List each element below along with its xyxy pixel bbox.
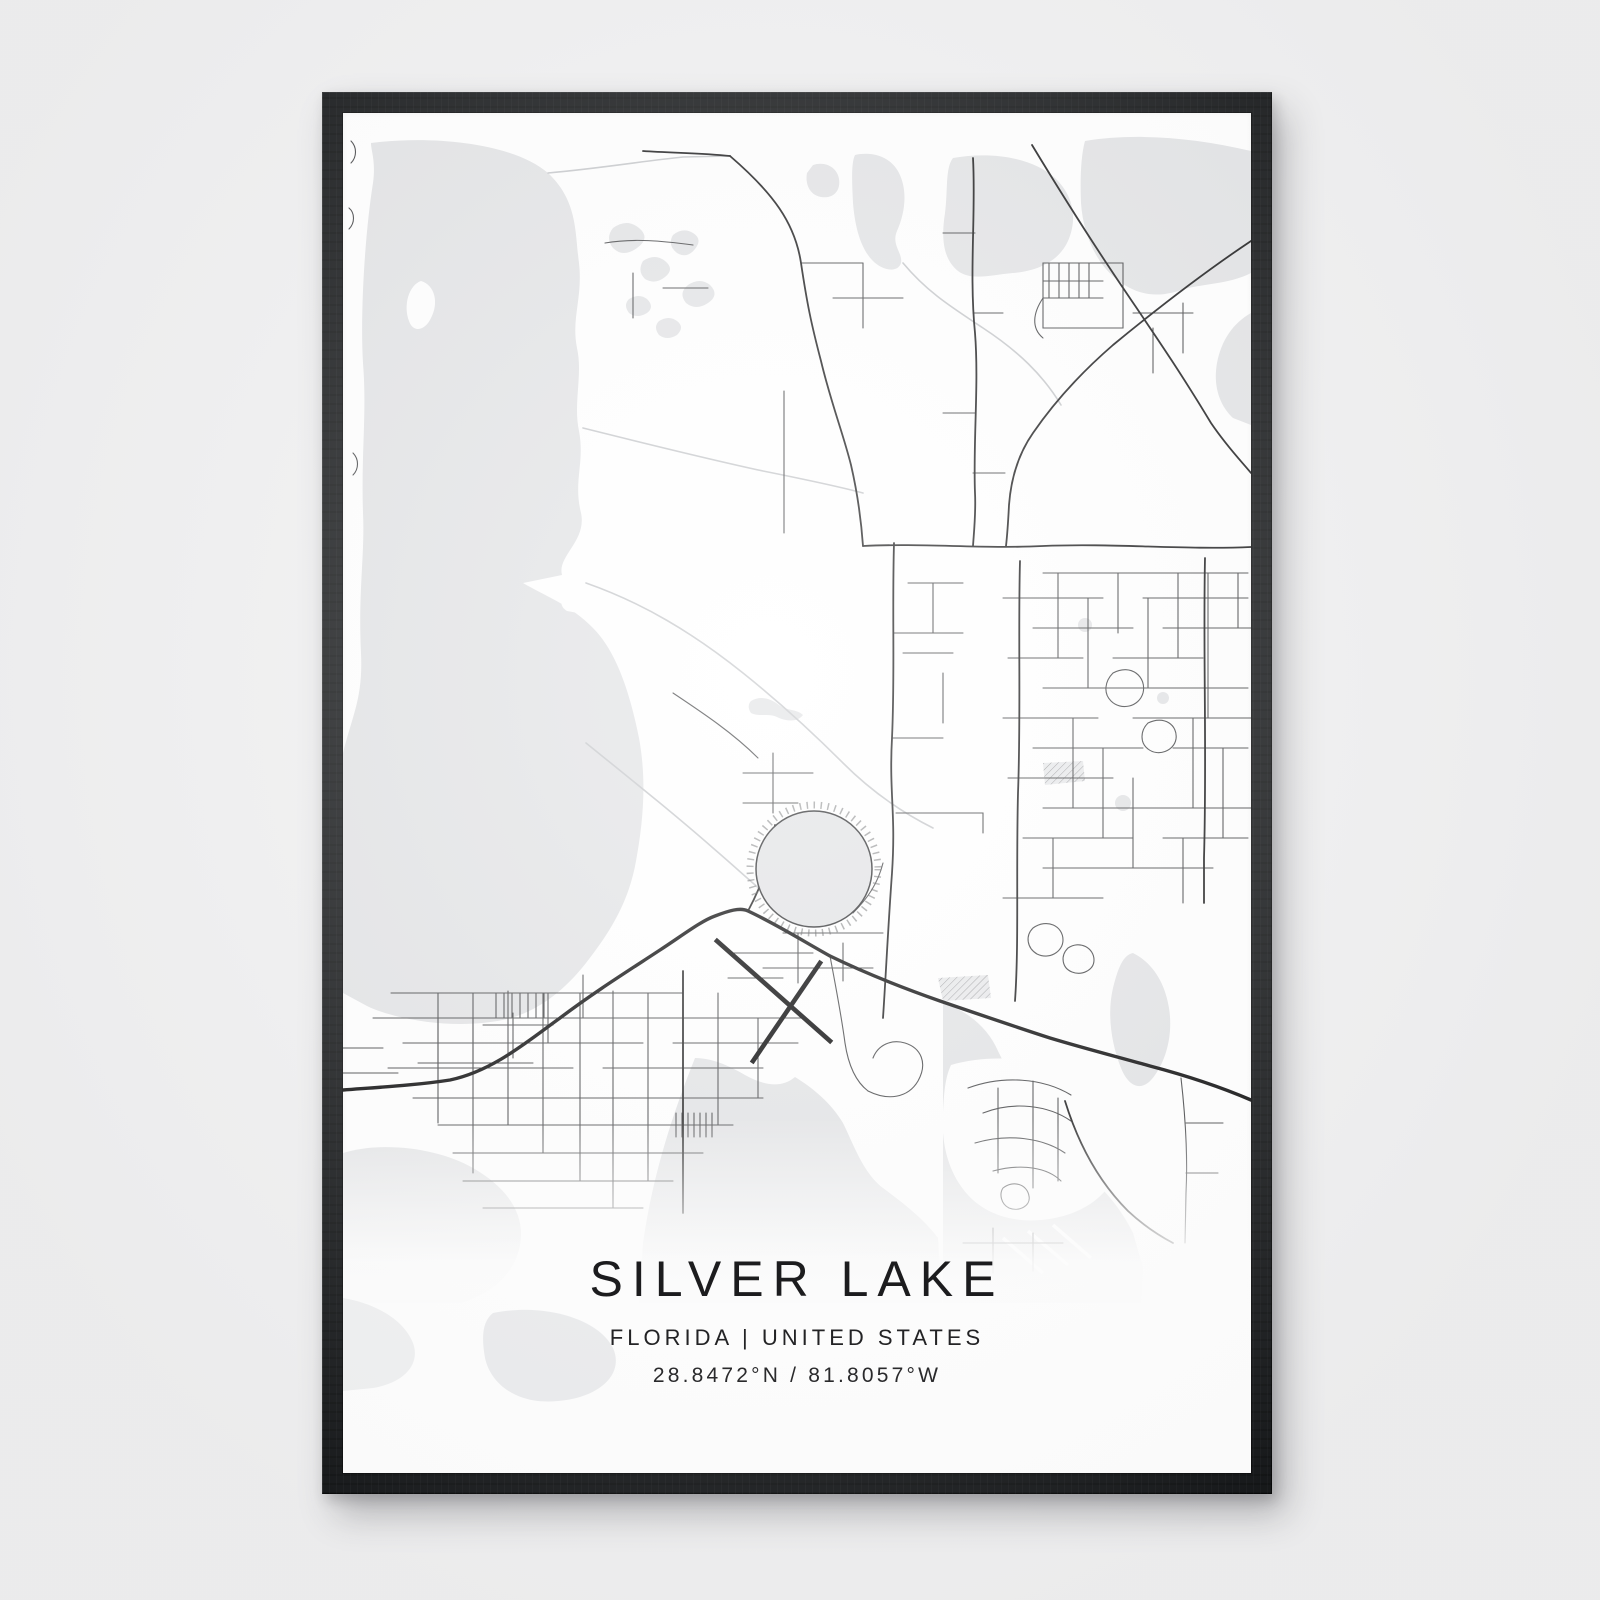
poster-frame: SILVER LAKE FLORIDA | UNITED STATES 28.8… [322,92,1272,1494]
poster-title: SILVER LAKE [343,1251,1251,1309]
wetland-hatch [938,761,1085,1001]
poster-subtitle: FLORIDA | UNITED STATES [343,1325,1251,1351]
poster-coordinates: 28.8472°N / 81.8057°W [343,1364,1251,1388]
poster-caption: SILVER LAKE FLORIDA | UNITED STATES 28.8… [343,1251,1251,1388]
silver-lake-circle [750,805,878,933]
wall-background: SILVER LAKE FLORIDA | UNITED STATES 28.8… [0,0,1600,1600]
map-poster: SILVER LAKE FLORIDA | UNITED STATES 28.8… [343,113,1251,1473]
